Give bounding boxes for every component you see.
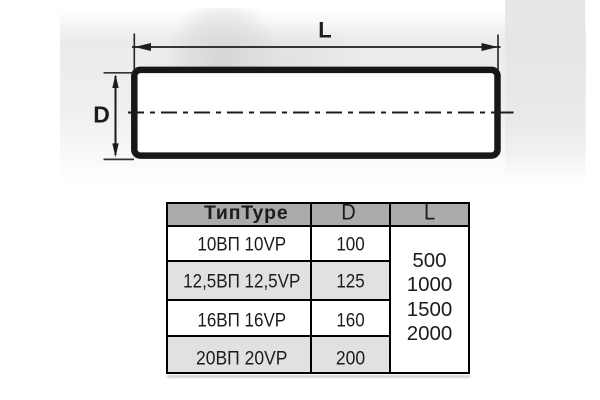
svg-text:D: D [93, 102, 110, 128]
svg-text:L: L [318, 18, 331, 43]
